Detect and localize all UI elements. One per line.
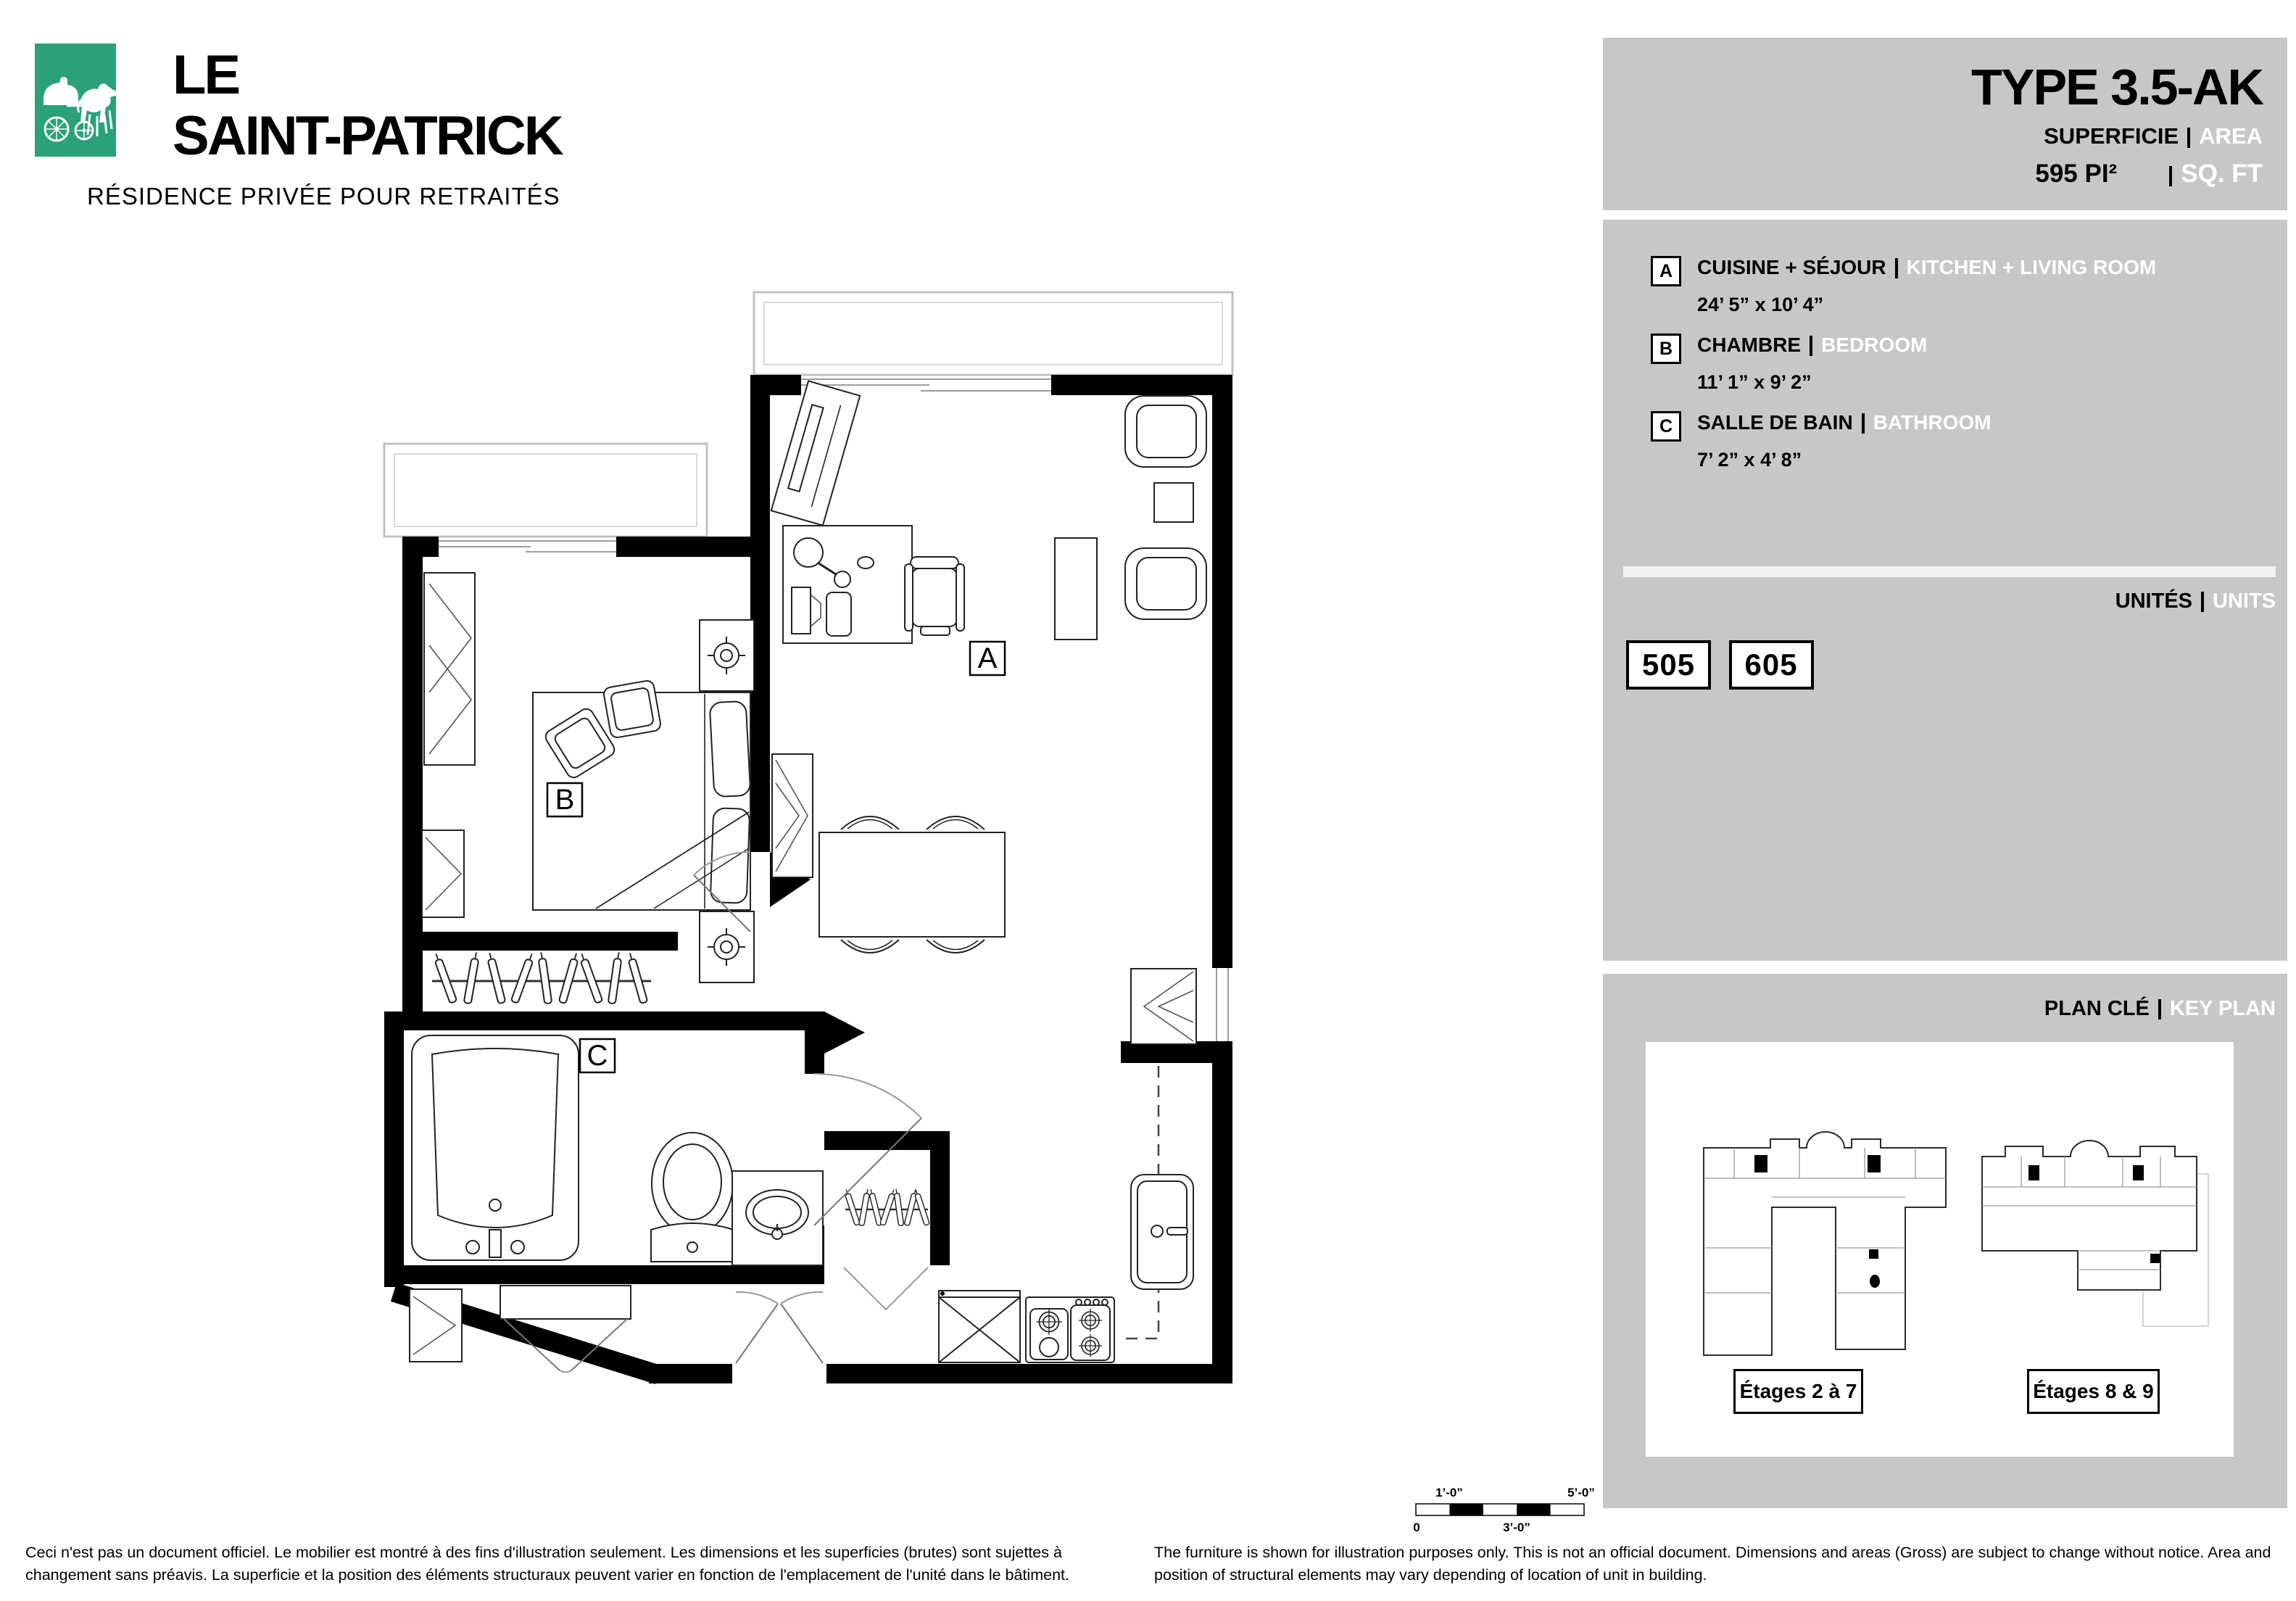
entry-closet-door bbox=[844, 1267, 928, 1310]
armchair bbox=[1125, 548, 1206, 619]
living-balcony bbox=[754, 292, 1232, 375]
units-heading: UNITÉSUNITS bbox=[2115, 589, 2276, 613]
area-labels: SUPERFICIEAREA bbox=[1603, 123, 2263, 149]
scale-bar: 1’-0” 5’-0” 0 3’-0” bbox=[1399, 1479, 1602, 1537]
legend-dims-b: 11’ 1” x 9’ 2” bbox=[1697, 371, 2287, 394]
bathroom-vanity-sink bbox=[732, 1171, 823, 1265]
tv-stand bbox=[771, 381, 860, 525]
legend-key-b: B bbox=[1651, 334, 1681, 364]
window-seat-shelf bbox=[1131, 969, 1196, 1044]
legend-name-fr-a: CUISINE + SÉJOUR bbox=[1697, 256, 1886, 278]
bedroom-dresser-top bbox=[424, 573, 475, 765]
keyplan-heading: PLAN CLÉKEY PLAN bbox=[2044, 997, 2276, 1021]
room-label-b: B bbox=[547, 783, 582, 816]
legend-row-c: CSALLE DE BAINBATHROOM 7’ 2” x 4’ 8” bbox=[1651, 411, 2287, 471]
side-table bbox=[1154, 483, 1193, 522]
svg-text:B: B bbox=[555, 784, 575, 816]
divider-bar bbox=[2187, 128, 2190, 148]
units-label-en: UNITS bbox=[2213, 589, 2276, 613]
light-divider-bar bbox=[1623, 566, 2276, 577]
legend-name-en-c: BATHROOM bbox=[1873, 411, 1992, 434]
legend-panel: ACUISINE + SÉJOURKITCHEN + LIVING ROOM 2… bbox=[1603, 220, 2287, 961]
bedroom-balcony bbox=[384, 444, 707, 537]
area-label-en: AREA bbox=[2199, 123, 2263, 149]
stove bbox=[1026, 1297, 1114, 1362]
room-label-c: C bbox=[580, 1039, 615, 1072]
office-chair bbox=[905, 557, 964, 635]
scale-label-5ft: 5’-0” bbox=[1567, 1486, 1595, 1499]
refrigerator bbox=[939, 1291, 1020, 1362]
entry-dresser bbox=[410, 1289, 462, 1362]
entrance-door bbox=[736, 1292, 823, 1363]
bedroom-closet-hangers bbox=[432, 952, 651, 1004]
legend-list: ACUISINE + SÉJOURKITCHEN + LIVING ROOM 2… bbox=[1603, 220, 2287, 471]
unit-type-title: TYPE 3.5-AK bbox=[1603, 58, 2263, 116]
keyplan-panel: PLAN CLÉKEY PLAN Étages 2 à 7 Étages 8 &… bbox=[1603, 974, 2287, 1508]
area-label-fr: SUPERFICIE bbox=[2044, 123, 2179, 149]
legend-key-c: C bbox=[1651, 411, 1681, 442]
units-label-fr: UNITÉS bbox=[2115, 589, 2192, 613]
disclaimer-english: The furniture is shown for illustration … bbox=[1154, 1542, 2285, 1586]
legend-row-a: ACUISINE + SÉJOURKITCHEN + LIVING ROOM 2… bbox=[1651, 256, 2287, 316]
coffee-table bbox=[1055, 538, 1097, 640]
keyplan-building-floors-8-9 bbox=[1970, 1109, 2210, 1348]
unit-type-panel: TYPE 3.5-AK SUPERFICIEAREA 595 PI²SQ. FT bbox=[1603, 38, 2287, 210]
armchair bbox=[1125, 396, 1206, 467]
living-shelf bbox=[772, 754, 813, 877]
divider-bar bbox=[2169, 166, 2172, 186]
keyplan-label-en: KEY PLAN bbox=[2170, 997, 2276, 1020]
unit-number-list: 505 605 bbox=[1626, 640, 1828, 690]
keyplan-building-floors-2-7 bbox=[1691, 1106, 1959, 1367]
scale-label-3ft: 3’-0” bbox=[1503, 1521, 1530, 1534]
keyplan-inset: Étages 2 à 7 Étages 8 & 9 bbox=[1646, 1042, 2234, 1457]
area-value-row: 595 PI²SQ. FT bbox=[1603, 160, 2263, 189]
keyplan-label-fr: PLAN CLÉ bbox=[2044, 997, 2150, 1020]
entry-closet-hangers bbox=[844, 1188, 930, 1226]
keyplan-caption-floors-8-9: Étages 8 & 9 bbox=[2027, 1369, 2160, 1414]
legend-name-en-b: BEDROOM bbox=[1821, 334, 1927, 356]
keyplan-caption-floors-2-7: Étages 2 à 7 bbox=[1733, 1369, 1863, 1414]
desk bbox=[783, 526, 912, 643]
legend-name-fr-c: SALLE DE BAIN bbox=[1697, 411, 1853, 434]
legend-key-a: A bbox=[1651, 256, 1681, 286]
logo-tagline: RÉSIDENCE PRIVÉE POUR RETRAITÉS bbox=[87, 183, 560, 210]
nightstand-top bbox=[700, 620, 754, 691]
nightstand-bottom bbox=[700, 911, 754, 982]
unit-number-505: 505 bbox=[1626, 640, 1711, 690]
logo-line2: SAINT-PATRICK bbox=[173, 109, 562, 164]
toilet bbox=[651, 1133, 734, 1262]
bedroom-dresser-bottom bbox=[422, 830, 464, 917]
divider-bar bbox=[1810, 336, 1812, 356]
divider-bar bbox=[1895, 258, 1898, 278]
horse-carriage-icon bbox=[35, 44, 116, 157]
disclaimer-french: Ceci n'est pas un document officiel. Le … bbox=[25, 1542, 1106, 1586]
svg-text:A: A bbox=[978, 642, 998, 674]
logo-line1: LE bbox=[173, 48, 562, 103]
area-value: 595 PI² bbox=[2035, 160, 2117, 188]
scale-label-1ft: 1’-0” bbox=[1435, 1486, 1463, 1499]
area-unit-en: SQ. FT bbox=[2181, 160, 2263, 188]
floor-plan-drawing: A B C bbox=[362, 276, 1276, 1407]
dining-set bbox=[819, 816, 1005, 953]
divider-bar bbox=[2201, 592, 2204, 612]
kitchen-sink bbox=[1131, 1175, 1193, 1289]
legend-dims-c: 7’ 2” x 4’ 8” bbox=[1697, 449, 2287, 471]
legend-name-en-a: KITCHEN + LIVING ROOM bbox=[1907, 256, 2157, 278]
divider-bar bbox=[2158, 999, 2161, 1019]
bathtub bbox=[412, 1035, 579, 1260]
legend-name-fr-b: CHAMBRE bbox=[1697, 334, 1801, 356]
legend-dims-a: 24’ 5” x 10’ 4” bbox=[1697, 294, 2287, 316]
logo-wordmark: LE SAINT-PATRICK bbox=[173, 48, 562, 164]
room-label-a: A bbox=[970, 642, 1005, 675]
divider-bar bbox=[1862, 413, 1865, 434]
legend-row-b: BCHAMBREBEDROOM 11’ 1” x 9’ 2” bbox=[1651, 334, 2287, 394]
scale-label-0: 0 bbox=[1413, 1521, 1420, 1534]
svg-text:C: C bbox=[587, 1040, 608, 1072]
unit-number-605: 605 bbox=[1729, 640, 1814, 690]
